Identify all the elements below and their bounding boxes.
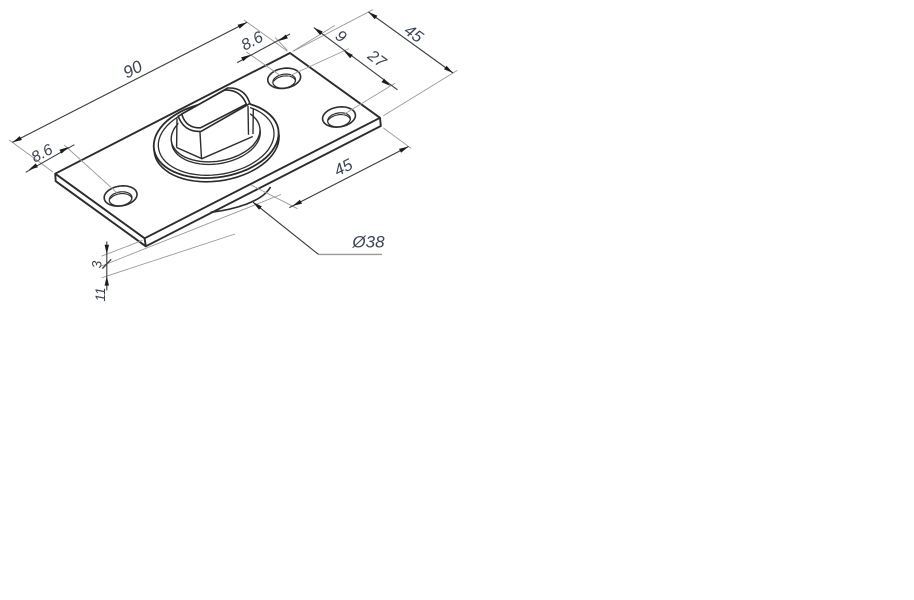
svg-text:90: 90 — [120, 56, 146, 82]
svg-text:8.6: 8.6 — [29, 141, 56, 166]
svg-text:Ø38: Ø38 — [351, 233, 385, 252]
svg-text:11: 11 — [93, 287, 108, 301]
svg-text:45: 45 — [401, 21, 427, 47]
svg-text:45: 45 — [331, 155, 356, 180]
svg-text:27: 27 — [363, 47, 389, 73]
svg-text:3: 3 — [90, 260, 105, 268]
